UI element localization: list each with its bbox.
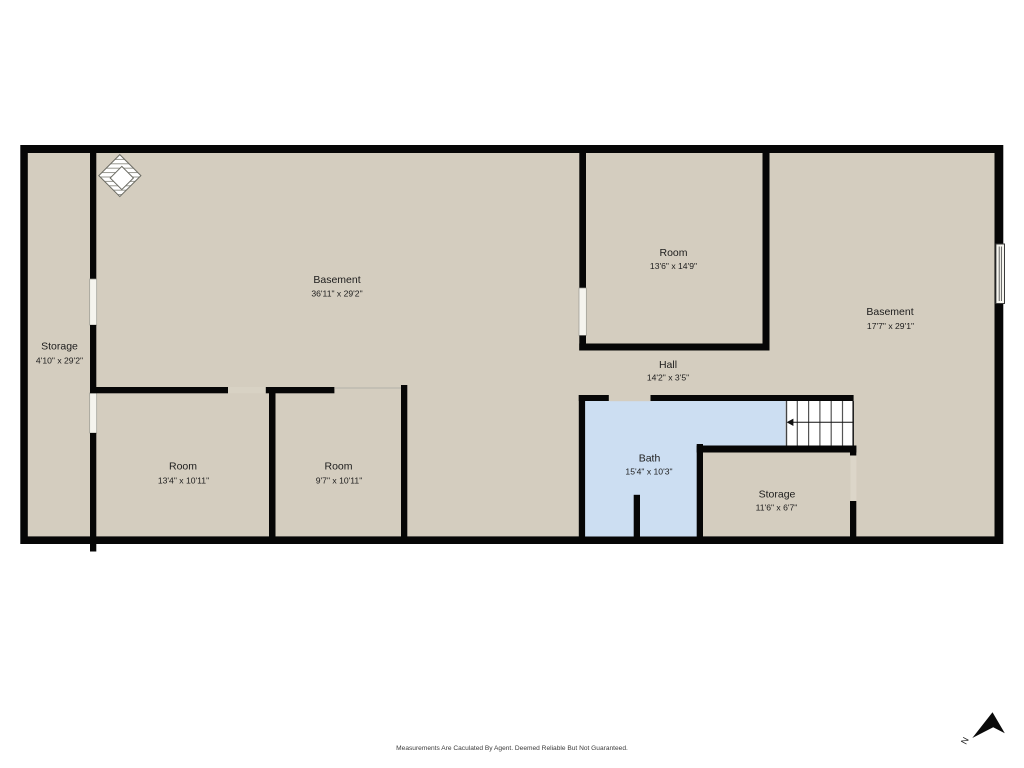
svg-text:Storage: Storage [759,489,796,501]
svg-text:Bath: Bath [639,453,661,465]
svg-text:Room: Room [324,461,352,473]
svg-text:11'6" x 6'7": 11'6" x 6'7" [756,503,798,513]
svg-text:Basement: Basement [866,306,913,318]
svg-text:15'4" x 10'3": 15'4" x 10'3" [625,467,672,477]
svg-text:Basement: Basement [313,274,360,286]
svg-text:Room: Room [659,247,687,259]
svg-text:Hall: Hall [659,359,677,371]
svg-text:13'4" x 10'11": 13'4" x 10'11" [158,476,209,486]
svg-text:9'7" x 10'11": 9'7" x 10'11" [316,476,363,486]
svg-text:13'6" x 14'9": 13'6" x 14'9" [650,261,697,271]
svg-text:4'10" x 29'2": 4'10" x 29'2" [36,356,83,366]
svg-text:Room: Room [169,461,197,473]
svg-text:Measurements Are Caculated By: Measurements Are Caculated By Agent. Dee… [396,745,628,752]
svg-text:36'11" x 29'2": 36'11" x 29'2" [311,289,362,299]
svg-text:Storage: Storage [41,341,78,353]
svg-text:17'7" x 29'1": 17'7" x 29'1" [867,321,914,331]
svg-text:14'2" x 3'5": 14'2" x 3'5" [647,373,689,383]
